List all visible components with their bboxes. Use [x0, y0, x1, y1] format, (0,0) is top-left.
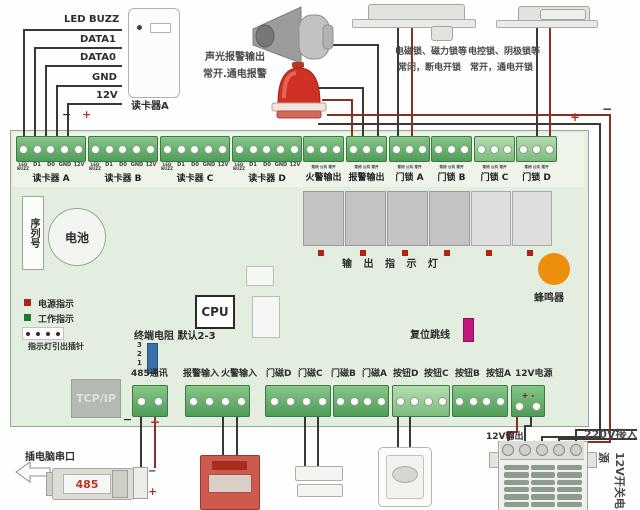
terminal-fire-output	[303, 136, 344, 162]
terminal-button-ba	[452, 385, 508, 417]
reader-led-icon	[137, 25, 142, 30]
label-sensor-c: 门磁C	[298, 366, 323, 379]
terminal-reader-d	[232, 136, 302, 162]
terminal-reader-a	[16, 136, 86, 162]
pinrow-fire-output: 常闭 公共 常开	[305, 164, 342, 169]
pin	[377, 397, 386, 406]
label-alarm-output: 报警输出	[346, 170, 387, 183]
pin	[237, 397, 246, 406]
pin	[396, 397, 405, 406]
terminal-reader-c	[160, 136, 230, 162]
reset-jumper	[463, 318, 474, 342]
conv-minus: −	[148, 466, 156, 477]
pin	[375, 145, 384, 154]
reader-slot-icon	[150, 23, 171, 33]
alarm-note-line2: 常开.通电报警	[203, 65, 267, 80]
pinrow-lock-a: 常闭 公共 常开	[391, 164, 428, 169]
pin	[318, 397, 327, 406]
pin	[490, 145, 499, 154]
psu-name-label: 12V开关电源	[596, 452, 628, 510]
label-reader-c: 读卡器 C	[160, 171, 230, 184]
terminal-alarm-output	[346, 136, 387, 162]
pin-dot	[36, 332, 40, 336]
pin	[60, 145, 69, 154]
buzzer-icon	[538, 253, 570, 285]
label-reader-d: 读卡器 D	[232, 171, 302, 184]
pin	[438, 397, 447, 406]
serial-number-box: 序列号	[22, 196, 44, 270]
pin	[545, 145, 554, 154]
pin	[19, 145, 28, 154]
lock-note-right-line1: 电控锁、阴极锁等	[468, 44, 540, 57]
pin	[434, 145, 443, 154]
pin	[105, 145, 114, 154]
label-reader-a: 读卡器 A	[16, 171, 86, 184]
pin	[262, 145, 271, 154]
screw	[519, 444, 531, 456]
pin	[118, 145, 127, 154]
pin	[249, 145, 258, 154]
power-led-icon	[24, 299, 31, 306]
polarity-minus: −	[62, 108, 71, 121]
pin	[137, 397, 146, 406]
conv-plus: +	[148, 485, 157, 498]
converter-terminal	[133, 467, 148, 499]
wire	[24, 30, 122, 136]
pin	[91, 145, 100, 154]
relay	[303, 191, 344, 246]
pin	[482, 397, 491, 406]
pin	[221, 397, 230, 406]
work-led-label: 工作指示	[38, 312, 74, 325]
pin	[302, 397, 311, 406]
relay	[345, 191, 386, 246]
buzzer-label: 蜂鸣器	[534, 289, 564, 304]
pin	[154, 397, 163, 406]
screw	[502, 444, 514, 456]
electric-lock-plate	[496, 20, 598, 28]
component-block	[246, 266, 274, 286]
label-lock-d: 门锁 D	[516, 170, 557, 183]
component-block	[252, 296, 280, 338]
exit-button-key	[392, 466, 418, 483]
pinrow-reader-a: LED BUZZD1D0GND12V	[16, 163, 86, 171]
psu-vents	[503, 464, 583, 508]
wire	[68, 104, 122, 136]
pin	[336, 397, 345, 406]
pin	[424, 397, 433, 406]
terminal-button-dc	[392, 385, 450, 417]
pin	[146, 145, 155, 154]
psu-polarity-label: + -	[522, 392, 535, 400]
pin	[477, 145, 486, 154]
fire-call-point-panel	[208, 474, 252, 493]
terminal-resistor-label: 终端电阻 默认2-3	[134, 327, 216, 342]
pin	[447, 145, 456, 154]
pin	[515, 402, 524, 411]
electric-lock-bolt	[540, 9, 586, 20]
wire-label-gnd: GND	[92, 72, 117, 83]
lock-note-left-line2: 常闭，断电开锁	[398, 60, 461, 73]
terminal-485	[132, 385, 168, 417]
cpu-chip: CPU	[195, 295, 235, 329]
pin	[392, 145, 401, 154]
jumper-pin-2: 2	[137, 350, 142, 358]
alarm-beacon-icon	[268, 60, 332, 120]
reset-jumper-label: 复位跳线	[410, 326, 450, 341]
pin-dot	[46, 332, 50, 336]
pin	[189, 397, 198, 406]
output-led	[486, 250, 492, 256]
pin	[405, 145, 414, 154]
pin	[132, 145, 141, 154]
pinrow-alarm-output: 常闭 公共 常开	[348, 164, 385, 169]
pin	[235, 145, 244, 154]
tcpip-module: TCP/IP	[71, 379, 121, 418]
pin	[496, 397, 505, 406]
lock-note-right-line2: 常开，通电开锁	[470, 60, 533, 73]
wire	[330, 45, 378, 136]
relay	[512, 191, 552, 246]
pin	[363, 397, 372, 406]
output-leds-label: 输 出 指 示 灯	[342, 255, 442, 270]
wire-label-12v: 12V	[96, 90, 118, 101]
label-button-b: 按钮B	[455, 366, 480, 379]
pin	[418, 145, 427, 154]
pin	[276, 145, 285, 154]
led-pin-header	[22, 327, 64, 340]
relay	[471, 191, 511, 246]
card-reader-device	[128, 8, 180, 98]
screw	[553, 444, 565, 456]
pin	[46, 145, 55, 154]
terminal-alarm-fire-in	[185, 385, 250, 417]
pin	[177, 145, 186, 154]
pin	[163, 145, 172, 154]
pin	[205, 397, 214, 406]
label-reader-b: 读卡器 B	[88, 171, 158, 184]
pin	[460, 145, 469, 154]
pin	[350, 397, 359, 406]
pin	[519, 145, 528, 154]
screw	[536, 444, 548, 456]
screw	[570, 444, 582, 456]
pin	[33, 145, 42, 154]
pin	[74, 145, 83, 154]
label-button-a: 按钮A	[486, 366, 511, 379]
jumper-pin-3: 3	[137, 341, 142, 350]
label-12v-power: 12V电源	[515, 366, 553, 379]
label-lock-a: 门锁 A	[389, 170, 430, 183]
label-lock-c: 门锁 C	[474, 170, 515, 183]
pin	[410, 397, 419, 406]
wiring-diagram: LED BUZZ DATA1 DATA0 GND 12V − + 读卡器A 声光…	[0, 0, 640, 510]
pin	[332, 145, 341, 154]
reader-device-label: 读卡器A	[131, 97, 169, 112]
terminal-sensor-dc	[265, 385, 331, 417]
label-fire-output: 火警输出	[303, 170, 344, 183]
pin	[469, 397, 478, 406]
pin	[190, 145, 199, 154]
pinrow-reader-c: LED BUZZD1D0GND12V	[160, 163, 230, 171]
label-alarm-in: 报警输入	[183, 366, 219, 379]
bus-minus-mark: −	[602, 102, 612, 116]
pinrow-reader-d: LED BUZZD1D0GND12V	[232, 163, 302, 171]
pinrow-reader-b: LED BUZZD1D0GND12V	[88, 163, 158, 171]
pin	[306, 145, 315, 154]
pinrow-lock-c: 常闭 公共 常开	[476, 164, 513, 169]
label-485: 485通讯	[131, 366, 168, 379]
label-sensor-b: 门磁B	[331, 366, 356, 379]
pin	[349, 145, 358, 154]
door-contact-bar	[297, 484, 343, 497]
lock-note-left-line1: 电磁锁、磁力锁等	[395, 44, 467, 57]
psu-terminal-strip	[500, 441, 584, 460]
output-led	[318, 250, 324, 256]
polarity-plus: +	[82, 108, 91, 121]
wire-label-data0: DATA0	[80, 52, 116, 63]
converter-label: 485	[63, 474, 111, 494]
psu-in-label: 220V接入	[584, 426, 637, 442]
relay	[429, 191, 470, 246]
pin-dot	[26, 332, 30, 336]
output-led	[527, 250, 533, 256]
bus-plus: +	[150, 415, 160, 429]
maglock-plate	[352, 19, 476, 28]
wire-label-data1: DATA1	[80, 34, 116, 45]
work-led-icon	[24, 314, 31, 321]
converter-end	[112, 470, 128, 498]
led-header-note: 指示灯引出插针	[28, 341, 84, 352]
pin	[286, 397, 295, 406]
wire	[525, 417, 531, 443]
bus-plus-mark: +	[570, 110, 580, 124]
pin	[204, 145, 213, 154]
wire-label-led-buzz: LED BUZZ	[64, 14, 119, 25]
door-contact-bar	[295, 466, 343, 481]
terminal-lock-c	[474, 136, 515, 162]
bus-minus: −	[123, 413, 132, 426]
pinrow-lock-d: 常闭 公共 常开	[518, 164, 555, 169]
label-button-c: 按钮C	[424, 366, 449, 379]
pin	[270, 397, 279, 406]
label-sensor-d: 门磁D	[266, 366, 291, 379]
output-led	[444, 250, 450, 256]
pin	[532, 402, 541, 411]
label-sensor-a: 门磁A	[362, 366, 387, 379]
power-led-label: 电源指示	[38, 297, 74, 310]
terminal-lock-d	[516, 136, 557, 162]
pin	[319, 145, 328, 154]
relay	[387, 191, 428, 246]
label-button-d: 按钮D	[393, 366, 418, 379]
terminal-lock-b	[431, 136, 472, 162]
label-lock-b: 门锁 B	[431, 170, 472, 183]
label-fire-in: 火警输入	[221, 366, 257, 379]
pin	[362, 145, 371, 154]
pin-dot	[56, 332, 60, 336]
terminal-lock-a	[389, 136, 430, 162]
battery: 电池	[48, 208, 106, 266]
pin	[503, 145, 512, 154]
pin	[290, 145, 299, 154]
pinrow-lock-b: 常闭 公共 常开	[433, 164, 470, 169]
fire-call-point-band	[212, 461, 247, 470]
maglock-armature	[431, 26, 453, 41]
pin	[218, 145, 227, 154]
terminal-sensor-ba	[333, 385, 389, 417]
terminal-12v-power: + -	[511, 385, 545, 417]
alarm-note-line1: 声光报警输出	[205, 48, 265, 63]
pin	[455, 397, 464, 406]
terminal-reader-b	[88, 136, 158, 162]
pin	[532, 145, 541, 154]
